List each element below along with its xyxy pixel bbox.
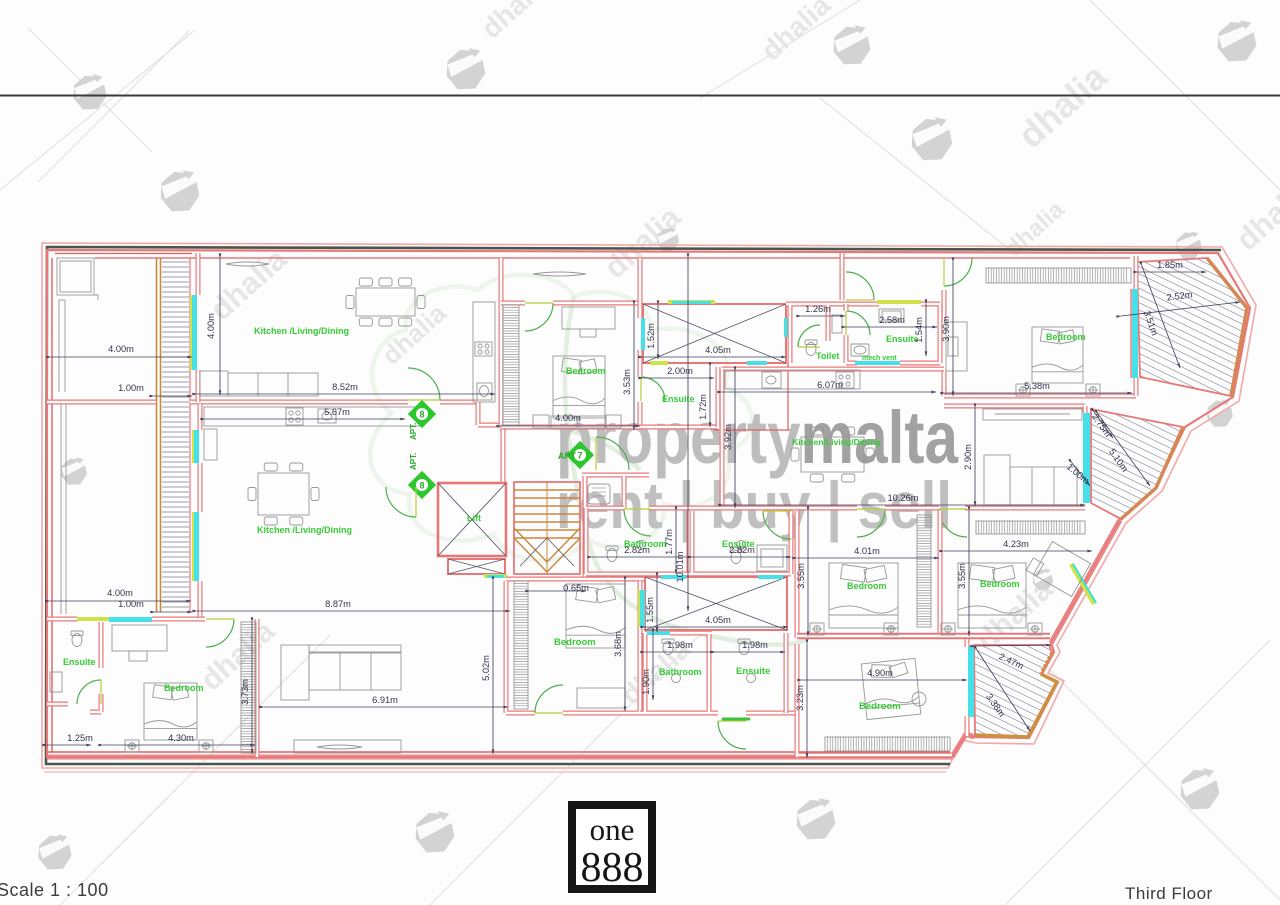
svg-text:dhalia: dhalia [1010,55,1115,156]
svg-text:888: 888 [581,845,644,891]
svg-text:Lift: Lift [467,513,481,523]
svg-text:Ensuite: Ensuite [662,394,695,404]
svg-text:4.00m: 4.00m [206,313,216,339]
svg-text:Kitchen /Living/Dining: Kitchen /Living/Dining [257,525,352,535]
svg-text:4.00m: 4.00m [107,588,133,598]
svg-text:3.90m: 3.90m [941,316,951,342]
svg-text:dhalia: dhalia [1229,171,1280,257]
svg-text:propertymalta: propertymalta [556,396,959,479]
svg-text:8: 8 [419,481,424,491]
svg-text:3.23m: 3.23m [795,685,805,711]
svg-text:1.90m: 1.90m [641,669,651,695]
svg-text:Bedroom: Bedroom [164,683,204,693]
svg-text:1.00m: 1.00m [118,599,144,609]
svg-text:5.02m: 5.02m [481,655,491,681]
svg-text:dhalia: dhalia [195,614,282,697]
svg-text:2.82m: 2.82m [624,545,650,555]
svg-text:dhalia: dhalia [376,298,452,371]
svg-text:1.52m: 1.52m [646,323,656,349]
svg-text:2.90m: 2.90m [963,444,973,470]
svg-text:Bedroom: Bedroom [847,581,887,591]
svg-text:1.77m: 1.77m [664,529,674,555]
svg-text:4.05m: 4.05m [705,345,731,355]
svg-text:dhalia: dhalia [203,241,294,327]
svg-text:Kitchen /Living/Dining: Kitchen /Living/Dining [254,326,349,336]
svg-text:Bedroom: Bedroom [1046,332,1086,342]
svg-text:Ensuite: Ensuite [736,666,770,677]
svg-text:Bedroom: Bedroom [566,366,606,376]
svg-text:4.00m: 4.00m [108,344,134,354]
svg-text:7: 7 [577,451,582,461]
svg-text:1.25m: 1.25m [67,733,93,743]
svg-text:Bedroom: Bedroom [859,701,901,712]
svg-text:1.54m: 1.54m [914,317,924,343]
svg-text:Third Floor: Third Floor [1125,884,1213,903]
svg-text:1.26m: 1.26m [805,304,831,314]
svg-text:3.53m: 3.53m [622,369,632,395]
svg-text:4.30m: 4.30m [168,733,194,743]
svg-text:1.72m: 1.72m [698,394,708,420]
svg-text:APT.: APT. [409,423,418,440]
svg-text:8: 8 [419,410,424,420]
svg-text:4.90m: 4.90m [867,668,893,678]
svg-text:mech vent: mech vent [862,355,897,362]
svg-text:1.98m: 1.98m [667,640,693,650]
svg-text:dhalia: dhalia [755,0,836,66]
svg-text:4.05m: 4.05m [705,615,731,625]
svg-text:dhalia: dhalia [475,0,556,44]
svg-text:2.58m: 2.58m [879,315,905,325]
svg-text:5.38m: 5.38m [1024,381,1050,391]
svg-text:Toilet: Toilet [816,351,839,361]
svg-text:Bedroom: Bedroom [980,579,1020,589]
svg-text:2.00m: 2.00m [667,366,693,376]
svg-text:5.67m: 5.67m [324,407,350,417]
svg-text:0.65m: 0.65m [563,583,589,593]
svg-text:Kitchen/Living/Dining: Kitchen/Living/Dining [792,437,880,447]
svg-text:1.85m: 1.85m [1157,260,1183,270]
svg-text:3.73m: 3.73m [240,679,250,705]
svg-text:4.23m: 4.23m [1003,539,1029,549]
svg-text:APT: APT [558,451,577,461]
svg-text:3.55m: 3.55m [957,563,967,589]
svg-text:4.00m: 4.00m [555,413,581,423]
svg-text:3.68m: 3.68m [613,631,623,657]
svg-text:one: one [590,812,635,847]
svg-text:6.07m: 6.07m [817,380,843,390]
svg-text:APT.: APT. [409,453,418,470]
svg-text:10.01m: 10.01m [675,551,685,582]
svg-text:4.01m: 4.01m [854,546,880,556]
svg-text:1.55m: 1.55m [645,597,655,623]
svg-text:Scale 1 : 100: Scale 1 : 100 [0,880,109,900]
svg-text:Bathroom: Bathroom [659,667,702,677]
svg-text:8.87m: 8.87m [325,599,351,609]
svg-text:3.92m: 3.92m [723,424,733,450]
svg-text:Ensuite: Ensuite [63,657,96,667]
svg-text:1.98m: 1.98m [742,640,768,650]
svg-text:1.00m: 1.00m [118,383,144,393]
svg-text:8.52m: 8.52m [332,382,358,392]
svg-text:3.55m: 3.55m [796,563,806,589]
svg-text:Bedroom: Bedroom [554,637,596,648]
svg-text:2.82m: 2.82m [729,545,755,555]
svg-text:6.91m: 6.91m [372,695,398,705]
svg-text:10.26m: 10.26m [887,493,918,503]
